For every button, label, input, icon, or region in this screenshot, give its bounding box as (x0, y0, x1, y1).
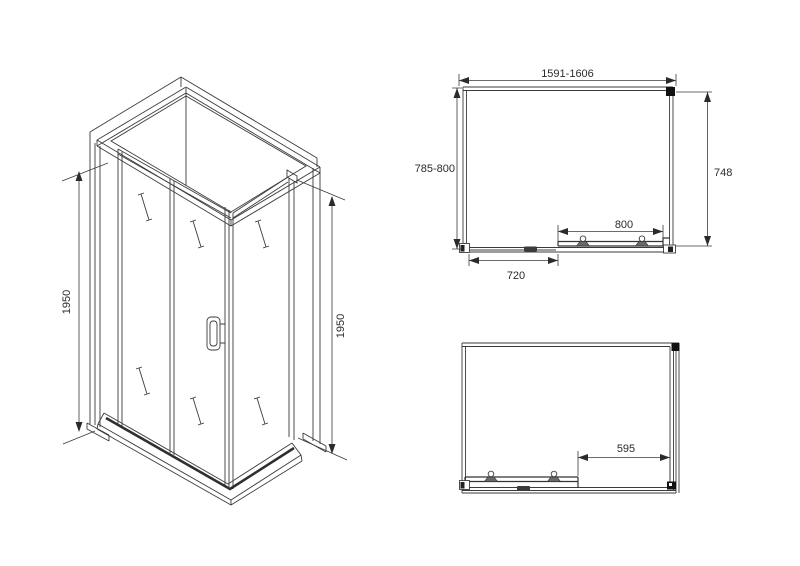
glass-mark (138, 193, 152, 221)
door-stile-and-corner-post (225, 207, 233, 489)
dimension-opening: 595 (578, 443, 670, 480)
dim-label-door-width: 800 (615, 219, 633, 231)
corner-track-marker-notch (669, 483, 672, 486)
dim-label-height-left: 1950 (61, 290, 73, 314)
front-left-post (118, 149, 122, 427)
glass-mark (136, 367, 150, 395)
dimension-height-right: 1950 (297, 180, 347, 460)
plan-view-door-closed: 1591-1606 785-800 748 800 72 (415, 68, 733, 282)
track-end-bracket-fill (461, 482, 465, 489)
return-stile (289, 178, 294, 440)
front-top-rail (118, 149, 231, 218)
dim-label-opening: 595 (617, 443, 635, 455)
dimension-fixed-panel: 720 (469, 254, 558, 282)
panel-joint-fitting (517, 486, 530, 491)
return-top-rail (233, 177, 288, 218)
shower-enclosure-drawing: 1950 1950 (0, 0, 800, 566)
glass-mark (190, 220, 204, 248)
right-wall-profile (303, 168, 326, 452)
door-handle-icon (207, 317, 225, 350)
dim-label-fixed-panel: 720 (507, 270, 525, 282)
panel-joint-fitting (524, 247, 537, 252)
dim-label-depth-range: 785-800 (415, 163, 455, 175)
dimension-side-depth: 748 (676, 92, 732, 246)
return-panel-profile (670, 343, 679, 493)
sliding-door-panel (465, 477, 578, 488)
panel-divider-post (170, 178, 174, 455)
roller-icon (485, 471, 498, 481)
bottom-track (462, 488, 676, 494)
glass-mark (255, 220, 269, 248)
glass-mark (190, 397, 204, 425)
plan-walls (463, 87, 673, 252)
dim-label-width-range: 1591-1606 (541, 68, 594, 80)
dimension-depth-left: 785-800 (415, 88, 462, 249)
corner-wall-bracket (666, 87, 675, 96)
corner-wall-bracket (672, 343, 680, 351)
plan-walls (462, 343, 679, 493)
technical-drawing-canvas: 1950 1950 (0, 0, 800, 566)
base-rail (106, 418, 294, 489)
isometric-view: 1950 1950 (61, 77, 347, 505)
dim-label-side-depth: 748 (714, 167, 732, 179)
bottom-track (463, 248, 673, 253)
dimension-height-left: 1950 (61, 163, 108, 444)
plan-view-door-open: 595 (460, 343, 680, 493)
glass-mark (254, 397, 268, 425)
dim-label-height-right: 1950 (335, 314, 347, 338)
corner-track-bracket-fill (668, 247, 673, 253)
roller-icon (548, 471, 561, 481)
dimension-overall-width: 1591-1606 (459, 68, 676, 86)
dimension-door-width: 800 (558, 219, 663, 242)
track-end-bracket-fill (461, 245, 465, 252)
sliding-door-panel (558, 238, 670, 246)
wall-edges (90, 77, 317, 424)
